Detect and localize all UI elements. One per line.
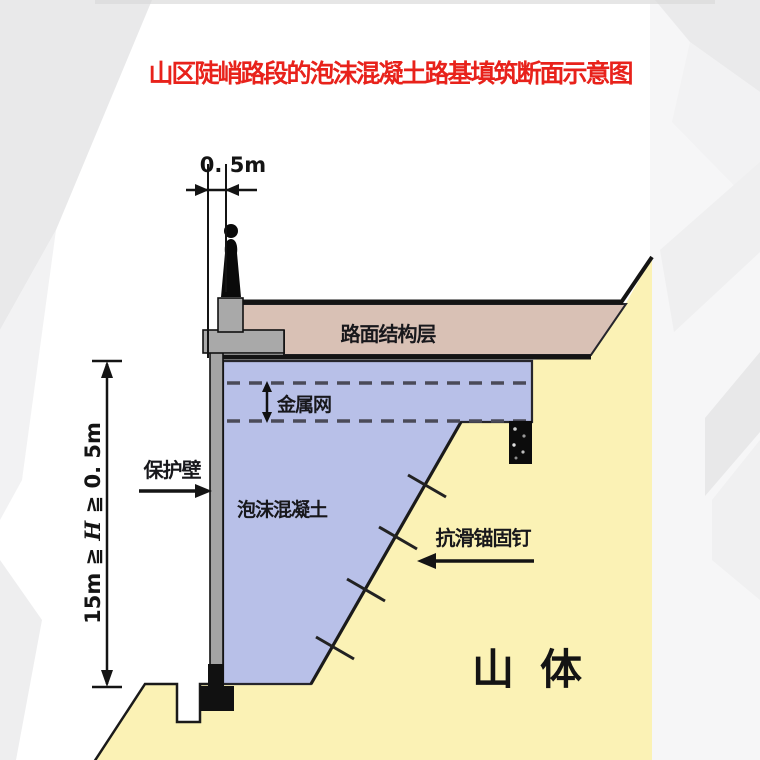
protection-wall-label: 保护壁 bbox=[143, 458, 202, 482]
foam-concrete-label: 泡沫混凝土 bbox=[237, 498, 328, 521]
width-dimension-label: 0. 5m bbox=[200, 153, 266, 177]
rock-key-block bbox=[509, 421, 532, 464]
diagram-title: 山区陡峭路段的泡沫混凝土路基填筑断面示意图 bbox=[148, 59, 632, 88]
slide-canvas: 0. 5m 15m ≧ H ≧ 0. 5m 山区陡峭路段的泡沫混凝土路基填筑断面… bbox=[0, 0, 760, 760]
cross-section-diagram: 0. 5m 15m ≧ H ≧ 0. 5m 山区陡峭路段的泡沫混凝土路基填筑断面… bbox=[0, 0, 760, 760]
protection-wall-region bbox=[210, 331, 223, 671]
height-dimension-label: 15m ≧ H ≧ 0. 5m bbox=[80, 422, 105, 624]
mountain-body-label: 山体 bbox=[472, 645, 608, 694]
metal-mesh-label: 金属网 bbox=[276, 393, 331, 416]
wall-footing bbox=[200, 686, 234, 711]
background-top-strip bbox=[95, 0, 715, 4]
pavement-layer-label: 路面结构层 bbox=[341, 322, 437, 346]
curb-base-slab bbox=[203, 330, 284, 353]
curb-stone bbox=[218, 298, 243, 332]
anchor-nail-label: 抗滑锚固钉 bbox=[436, 526, 532, 550]
